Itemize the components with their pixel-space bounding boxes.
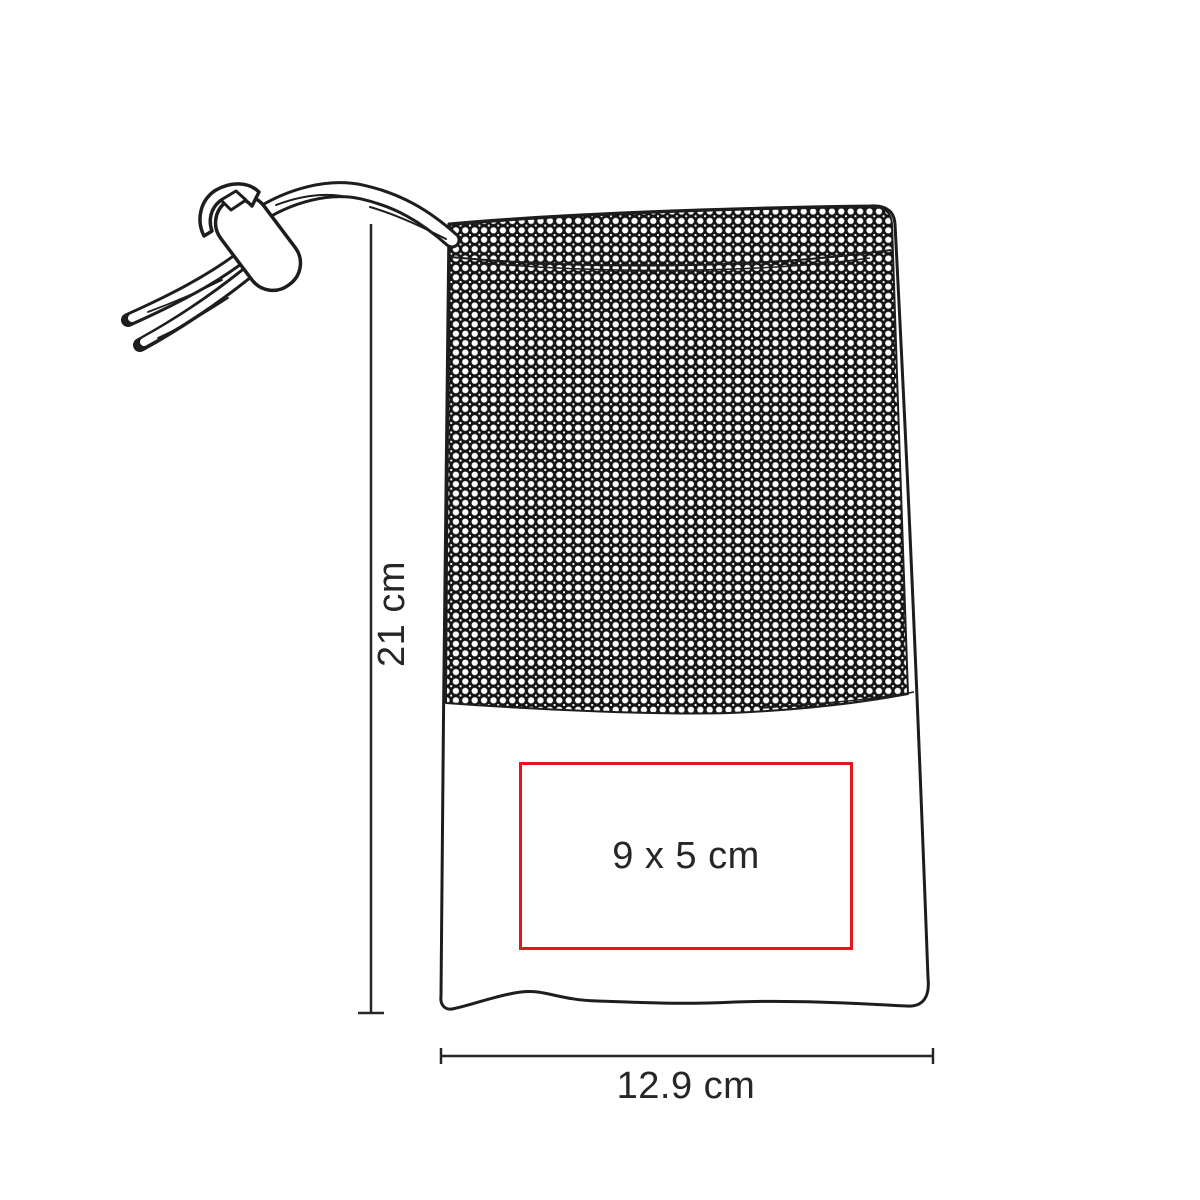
mesh-panel [446,207,908,714]
product-dimension-diagram: 9 x 5 cm 21 cm 12.9 cm [0,0,1200,1200]
width-dimension-label: 12.9 cm [576,1064,796,1108]
height-dimension-label: 21 cm [370,534,414,694]
width-dimension-line [441,1048,933,1064]
cord-loose-ends [128,258,246,345]
print-area-box: 9 x 5 cm [519,762,853,950]
print-area-label: 9 x 5 cm [612,834,760,878]
pouch-illustration [0,0,1200,1200]
